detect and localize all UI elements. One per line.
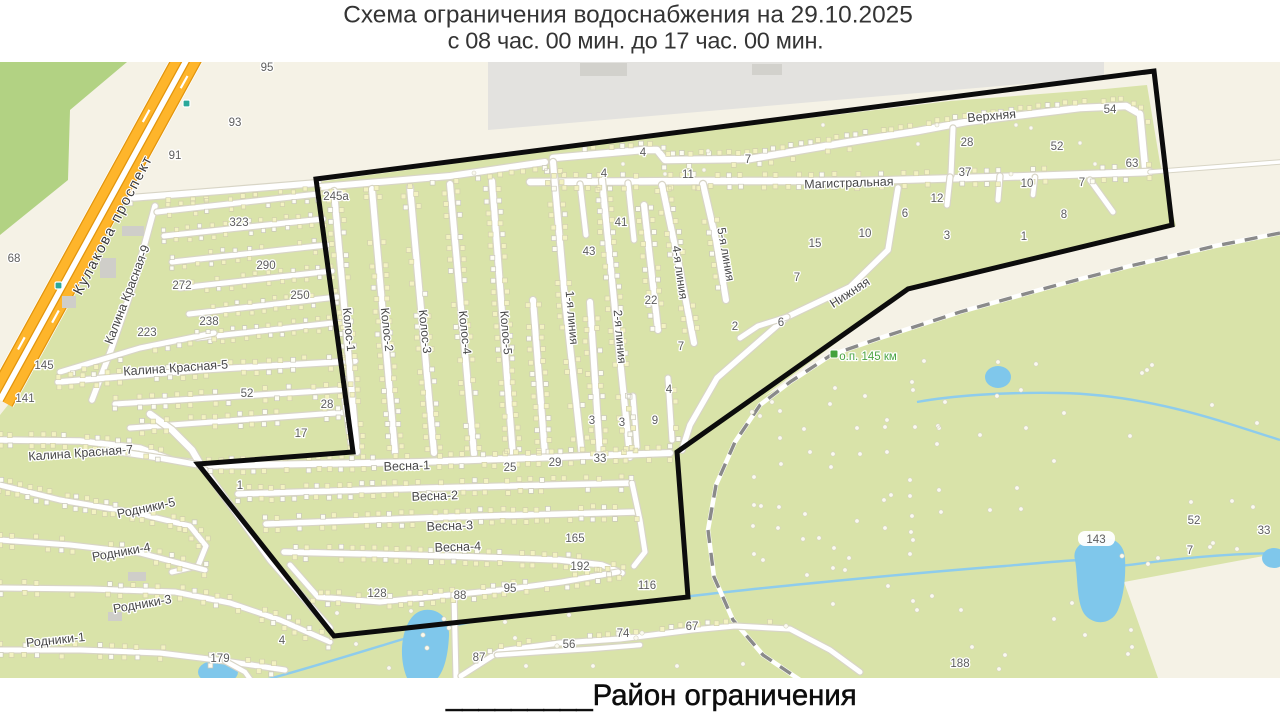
- svg-text:3: 3: [619, 417, 625, 429]
- svg-text:25: 25: [504, 462, 517, 474]
- svg-text:7: 7: [1079, 177, 1085, 189]
- svg-text:52: 52: [1051, 141, 1064, 153]
- svg-text:12: 12: [931, 193, 944, 205]
- svg-text:29: 29: [549, 457, 562, 469]
- svg-text:28: 28: [321, 399, 334, 411]
- svg-text:54: 54: [1104, 104, 1117, 116]
- svg-text:63: 63: [1126, 158, 1139, 170]
- svg-text:87: 87: [473, 652, 486, 664]
- svg-text:22: 22: [645, 295, 658, 307]
- svg-text:6: 6: [778, 317, 784, 329]
- svg-text:4: 4: [640, 147, 647, 159]
- svg-text:1: 1: [237, 480, 243, 492]
- svg-text:74: 74: [617, 628, 630, 640]
- svg-text:Весна-1: Весна-1: [383, 458, 430, 474]
- svg-text:37: 37: [959, 167, 972, 179]
- svg-text:52: 52: [1188, 515, 1201, 527]
- svg-text:17: 17: [295, 428, 308, 440]
- svg-text:41: 41: [615, 217, 628, 229]
- svg-text:56: 56: [563, 639, 576, 651]
- svg-text:10: 10: [1021, 178, 1034, 190]
- svg-text:2: 2: [732, 321, 738, 333]
- svg-text:93: 93: [229, 117, 242, 129]
- svg-text:250: 250: [290, 290, 309, 302]
- svg-text:33: 33: [594, 453, 607, 465]
- svg-text:143: 143: [1086, 534, 1105, 546]
- svg-text:179: 179: [210, 653, 229, 665]
- svg-text:68: 68: [8, 253, 21, 265]
- svg-text:91: 91: [169, 150, 182, 162]
- svg-text:о.п. 145 км: о.п. 145 км: [839, 351, 897, 363]
- svg-text:1: 1: [1021, 231, 1027, 243]
- svg-text:6: 6: [902, 208, 908, 220]
- svg-text:116: 116: [638, 580, 656, 592]
- svg-text:95: 95: [504, 583, 517, 595]
- svg-text:145: 145: [34, 360, 53, 372]
- svg-text:10: 10: [859, 228, 872, 240]
- svg-text:с 08 час. 00 мин. до 17 час. 0: с 08 час. 00 мин. до 17 час. 00 мин.: [448, 28, 824, 54]
- svg-text:3: 3: [944, 230, 950, 242]
- svg-text:7: 7: [745, 154, 751, 166]
- svg-text:11: 11: [682, 169, 694, 181]
- svg-text:188: 188: [950, 658, 969, 670]
- svg-text:Весна-4: Весна-4: [434, 539, 481, 555]
- svg-text:15: 15: [809, 238, 822, 250]
- svg-text:28: 28: [961, 137, 974, 149]
- svg-text:4: 4: [279, 635, 286, 647]
- svg-text:33: 33: [1258, 525, 1271, 537]
- svg-text:88: 88: [454, 590, 467, 602]
- svg-text:3: 3: [589, 415, 595, 427]
- svg-text:192: 192: [570, 561, 589, 573]
- svg-text:43: 43: [583, 246, 596, 258]
- svg-text:52: 52: [241, 388, 254, 400]
- svg-text:9: 9: [652, 415, 658, 427]
- svg-text:4: 4: [601, 168, 608, 180]
- svg-text:8: 8: [1061, 209, 1067, 221]
- svg-text:Схема ограничения водоснабжени: Схема ограничения водоснабжения на 29.10…: [343, 2, 913, 29]
- svg-text:7: 7: [1187, 545, 1193, 557]
- svg-text:272: 272: [172, 280, 191, 292]
- svg-text:290: 290: [256, 260, 275, 272]
- svg-text:323: 323: [229, 217, 248, 229]
- svg-text:_________Район ограничения: _________Район ограничения: [445, 679, 857, 712]
- svg-text:95: 95: [261, 62, 274, 74]
- svg-text:141: 141: [15, 393, 34, 405]
- svg-text:7: 7: [678, 341, 684, 353]
- svg-text:223: 223: [137, 327, 156, 339]
- svg-text:4: 4: [666, 384, 673, 396]
- svg-text:245а: 245а: [323, 191, 349, 203]
- svg-text:Весна-2: Весна-2: [411, 488, 458, 504]
- svg-text:7: 7: [794, 272, 800, 284]
- svg-text:Весна-3: Весна-3: [426, 518, 473, 534]
- svg-text:67: 67: [686, 621, 699, 633]
- svg-text:238: 238: [199, 316, 218, 328]
- svg-text:165: 165: [565, 533, 584, 545]
- svg-text:128: 128: [367, 588, 386, 600]
